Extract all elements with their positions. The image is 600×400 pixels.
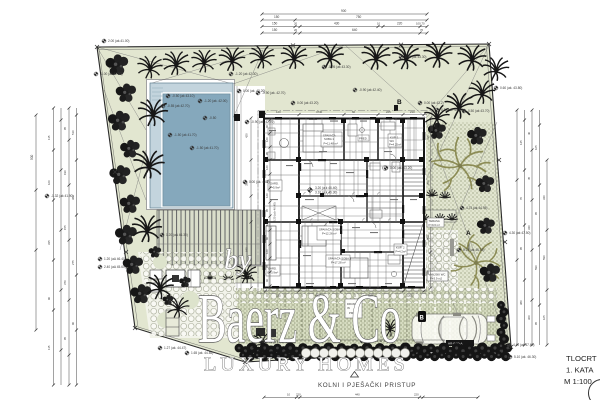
svg-text:-0.90 (ak. 42.70): -0.90 (ak. 42.70) xyxy=(262,91,285,95)
svg-text:275: 275 xyxy=(71,260,75,265)
svg-text:620: 620 xyxy=(368,294,373,298)
svg-text:2.40 (aA 45.60): 2.40 (aA 45.60) xyxy=(104,265,126,269)
svg-text:95: 95 xyxy=(63,126,67,130)
svg-text:590: 590 xyxy=(534,265,538,270)
svg-text:-1.20 (ak 42.30): -1.20 (ak 42.30) xyxy=(235,72,258,76)
svg-text:340: 340 xyxy=(426,270,430,275)
svg-text:60: 60 xyxy=(265,179,269,183)
svg-text:P=11.48 m²: P=11.48 m² xyxy=(324,142,338,146)
svg-text:425: 425 xyxy=(315,294,320,298)
svg-text:-1.32 (ak 41.90): -1.32 (ak 41.90) xyxy=(51,194,74,198)
svg-text:120: 120 xyxy=(265,137,269,142)
svg-text:60: 60 xyxy=(265,236,269,240)
svg-text:M 1:100: M 1:100 xyxy=(564,377,592,386)
svg-text:225: 225 xyxy=(386,110,391,114)
svg-text:60: 60 xyxy=(265,124,269,128)
svg-text:B: B xyxy=(397,99,402,106)
svg-text:0.90 (ak 43.30): 0.90 (ak 43.30) xyxy=(405,55,426,59)
svg-text:0.60 (ak. 43.80): 0.60 (ak. 43.80) xyxy=(500,86,522,90)
svg-text:3.10 (a.k 46.30): 3.10 (a.k 46.30) xyxy=(315,191,337,195)
svg-text:205: 205 xyxy=(408,294,413,298)
svg-text:-0.90 (ak. 42.70): -0.90 (ak. 42.70) xyxy=(251,120,274,124)
svg-text:220: 220 xyxy=(296,393,301,397)
svg-text:PRED.: PRED. xyxy=(359,137,368,141)
svg-text:10: 10 xyxy=(287,393,291,397)
svg-text:210: 210 xyxy=(410,110,415,114)
svg-text:B: B xyxy=(420,316,425,322)
svg-text:4.40 (ak 47.60): 4.40 (ak 47.60) xyxy=(513,343,534,347)
svg-text:KOLNI I PJEŠAČKI PRISTUP: KOLNI I PJEŠAČKI PRISTUP xyxy=(318,380,416,389)
svg-text:120: 120 xyxy=(265,249,269,254)
svg-text:P=4.2m²: P=4.2m² xyxy=(396,250,407,254)
svg-text:5.15 (ak 46.35): 5.15 (ak 46.35) xyxy=(463,248,484,252)
svg-text:115: 115 xyxy=(47,345,51,350)
svg-text:3.20 (a.k 46.40): 3.20 (a.k 46.40) xyxy=(315,186,337,190)
svg-text:4740: 4740 xyxy=(316,110,323,114)
svg-text:-1.20 (ak. 42.00): -1.20 (ak. 42.00) xyxy=(204,99,227,103)
svg-text:95: 95 xyxy=(63,336,67,340)
svg-text:120: 120 xyxy=(265,165,269,170)
svg-text:300: 300 xyxy=(426,235,430,240)
svg-text:120: 120 xyxy=(265,221,269,226)
svg-text:380: 380 xyxy=(519,300,523,305)
svg-text:155: 155 xyxy=(63,225,67,230)
svg-text:150: 150 xyxy=(272,22,278,26)
svg-text:350: 350 xyxy=(426,180,430,185)
svg-text:750: 750 xyxy=(356,15,362,19)
svg-text:335: 335 xyxy=(276,294,281,298)
svg-text:220: 220 xyxy=(414,393,419,397)
svg-text:500: 500 xyxy=(30,154,34,160)
svg-text:70: 70 xyxy=(420,28,424,32)
svg-text:220: 220 xyxy=(397,22,403,26)
svg-text:HOMES: HOMES xyxy=(318,354,409,376)
svg-text:430: 430 xyxy=(334,22,340,26)
svg-text:165: 165 xyxy=(534,145,538,150)
svg-text:2.00 (ak.41.00): 2.00 (ak.41.00) xyxy=(108,39,129,43)
svg-text:95: 95 xyxy=(265,151,269,155)
svg-text:95: 95 xyxy=(265,264,269,268)
svg-text:5.10 (ak. 46.30): 5.10 (ak. 46.30) xyxy=(514,355,536,359)
svg-text:10: 10 xyxy=(377,22,381,26)
svg-text:-0.55 (ak 42.70): -0.55 (ak 42.70) xyxy=(167,104,190,108)
svg-text:4.30 (ak 47.50): 4.30 (ak 47.50) xyxy=(509,231,530,235)
svg-text:415: 415 xyxy=(426,135,430,140)
svg-text:-1.50 (ak 41.70): -1.50 (ak 41.70) xyxy=(174,133,197,137)
svg-text:45: 45 xyxy=(527,176,531,180)
svg-text:640: 640 xyxy=(245,247,249,252)
svg-text:150: 150 xyxy=(272,28,278,32)
svg-text:590: 590 xyxy=(542,255,546,260)
svg-text:-1.00 (ak 42.20): -1.00 (ak 42.20) xyxy=(100,72,123,76)
svg-text:1. KATA: 1. KATA xyxy=(566,366,594,375)
svg-text:370: 370 xyxy=(63,280,67,285)
svg-text:P=12.26 m²: P=12.26 m² xyxy=(322,232,337,236)
svg-text:90: 90 xyxy=(71,321,75,325)
svg-text:0.00 (ak. 43.20): 0.00 (ak. 43.20) xyxy=(390,166,412,170)
svg-text:-0.50: -0.50 xyxy=(209,116,216,120)
svg-text:1.27 (ak. 44.47): 1.27 (ak. 44.47) xyxy=(164,346,186,350)
svg-text:640: 640 xyxy=(352,28,358,32)
svg-text:P=5.9m²: P=5.9m² xyxy=(270,186,281,190)
svg-text:4.75 (ak 44.95): 4.75 (ak 44.95) xyxy=(466,206,487,210)
svg-text:90: 90 xyxy=(47,296,51,300)
svg-text:95: 95 xyxy=(265,208,269,212)
svg-text:95: 95 xyxy=(519,246,523,250)
svg-text:0.00 (ak 43.2): 0.00 (ak 43.2) xyxy=(424,101,444,105)
svg-text:340: 340 xyxy=(527,225,531,230)
svg-text:420: 420 xyxy=(245,133,249,138)
svg-text:70: 70 xyxy=(519,196,523,200)
svg-text:1.20 (aA 46.40): 1.20 (aA 46.40) xyxy=(104,257,126,261)
svg-text:0.00 (ak 43.20): 0.00 (ak 43.20) xyxy=(297,101,318,105)
svg-text:0.50 (ak 43.70): 0.50 (ak 43.70) xyxy=(468,109,489,113)
svg-text:60: 60 xyxy=(265,278,269,282)
svg-text:120: 120 xyxy=(265,193,269,198)
svg-text:95: 95 xyxy=(534,211,538,215)
svg-text:160: 160 xyxy=(47,180,51,185)
svg-text:20: 20 xyxy=(294,22,298,26)
svg-text:190: 190 xyxy=(63,170,67,175)
svg-text:-0.95 (ak 43.30): -0.95 (ak 43.30) xyxy=(328,65,351,69)
svg-text:115: 115 xyxy=(47,135,51,140)
svg-text:A: A xyxy=(466,230,471,237)
svg-text:145: 145 xyxy=(519,140,523,145)
svg-text:335: 335 xyxy=(47,240,51,245)
svg-text:20: 20 xyxy=(294,28,298,32)
svg-text:LUXURY: LUXURY xyxy=(204,354,311,376)
svg-text:150: 150 xyxy=(274,15,280,19)
svg-text:1.20 (aA 46.30): 1.20 (aA 46.30) xyxy=(166,233,188,237)
svg-text:-0.50 (ak 43.10): -0.50 (ak 43.10) xyxy=(172,94,195,98)
svg-text:P=4.25m²: P=4.25m² xyxy=(389,143,401,147)
svg-text:3.20 (a.k 46.40): 3.20 (a.k 46.40) xyxy=(273,202,277,222)
svg-text:-1.50 (ak 41.70): -1.50 (ak 41.70) xyxy=(196,146,219,150)
svg-text:0.00 (ak. 43.20): 0.00 (ak. 43.20) xyxy=(243,89,265,93)
svg-text:40: 40 xyxy=(527,131,531,135)
svg-text:900: 900 xyxy=(341,9,347,13)
svg-text:510: 510 xyxy=(71,130,75,135)
svg-text:340: 340 xyxy=(542,195,546,200)
svg-text:100,70: 100,70 xyxy=(416,22,425,26)
svg-text:120: 120 xyxy=(276,110,281,114)
svg-text:60: 60 xyxy=(352,110,356,114)
svg-text:P=9.6 m²: P=9.6 m² xyxy=(429,223,440,227)
svg-text:SOBA 1: SOBA 1 xyxy=(324,137,334,141)
svg-text:440: 440 xyxy=(355,393,360,397)
svg-text:165: 165 xyxy=(542,315,546,320)
svg-text:356: 356 xyxy=(245,181,249,186)
svg-text:360: 360 xyxy=(527,315,531,320)
svg-text:95: 95 xyxy=(534,321,538,325)
svg-text:TLOCRT: TLOCRT xyxy=(566,354,597,363)
svg-text:-0.90 (ak 42.40): -0.90 (ak 42.40) xyxy=(359,88,382,92)
